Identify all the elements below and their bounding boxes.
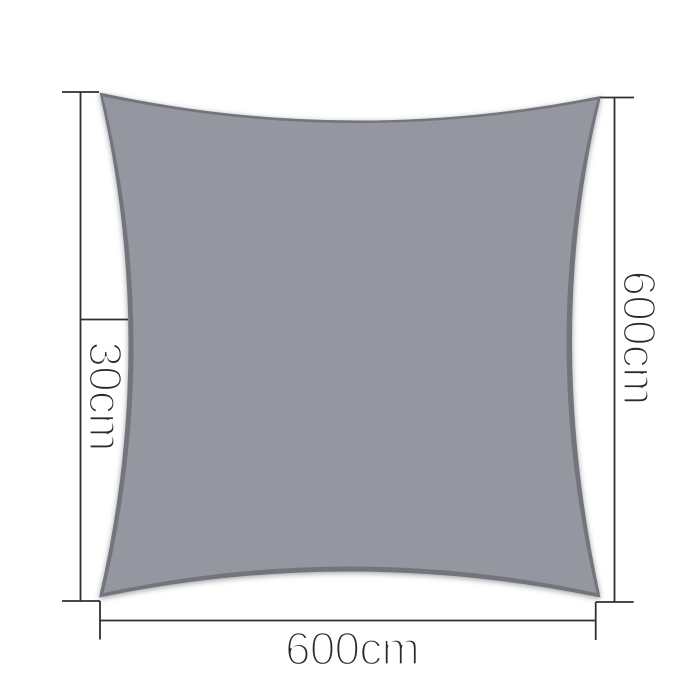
svg-text:600cm: 600cm	[285, 623, 419, 675]
svg-text:30cm: 30cm	[80, 341, 132, 450]
svg-text:600cm: 600cm	[614, 270, 666, 404]
